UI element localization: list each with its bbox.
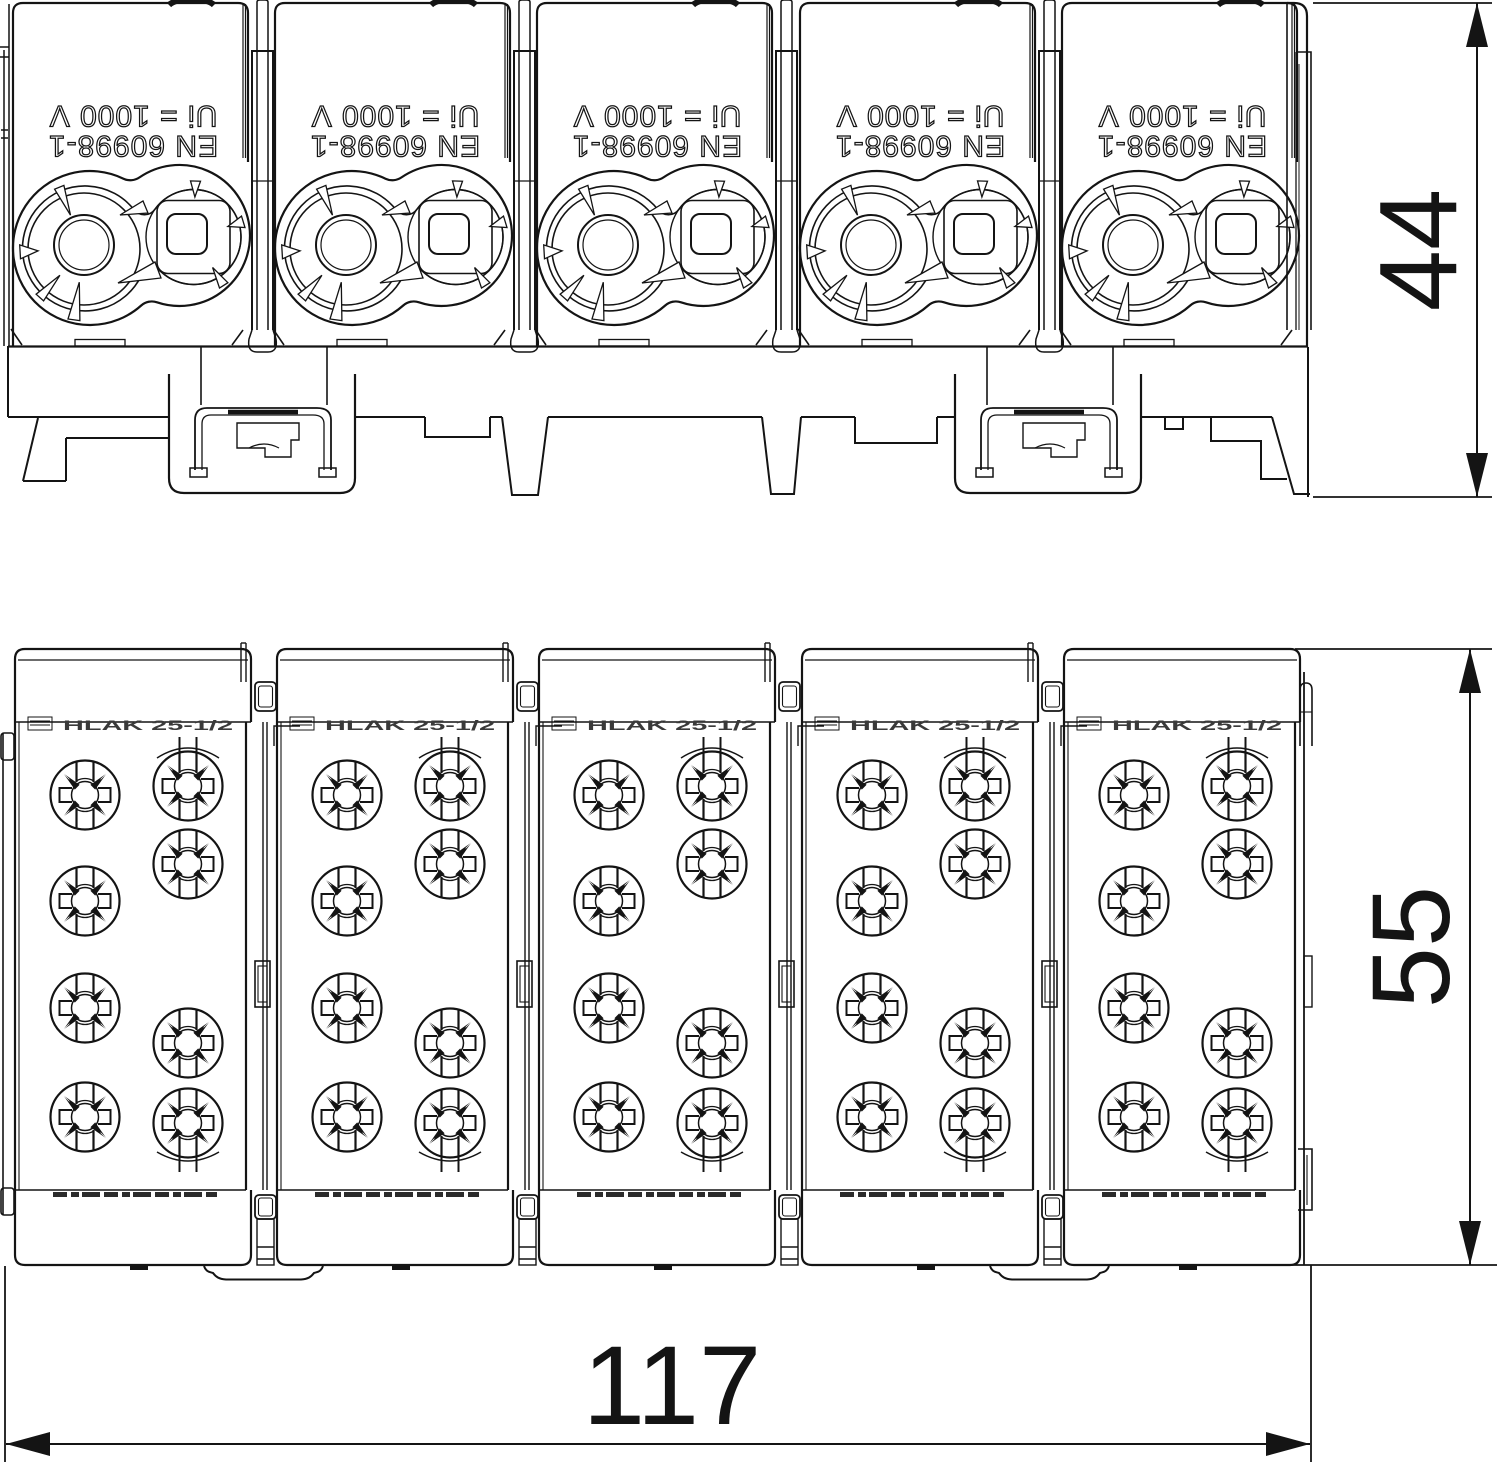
svg-text:44: 44 bbox=[1357, 189, 1480, 311]
svg-text:55: 55 bbox=[1350, 886, 1473, 1008]
svg-text:117: 117 bbox=[583, 1323, 762, 1448]
